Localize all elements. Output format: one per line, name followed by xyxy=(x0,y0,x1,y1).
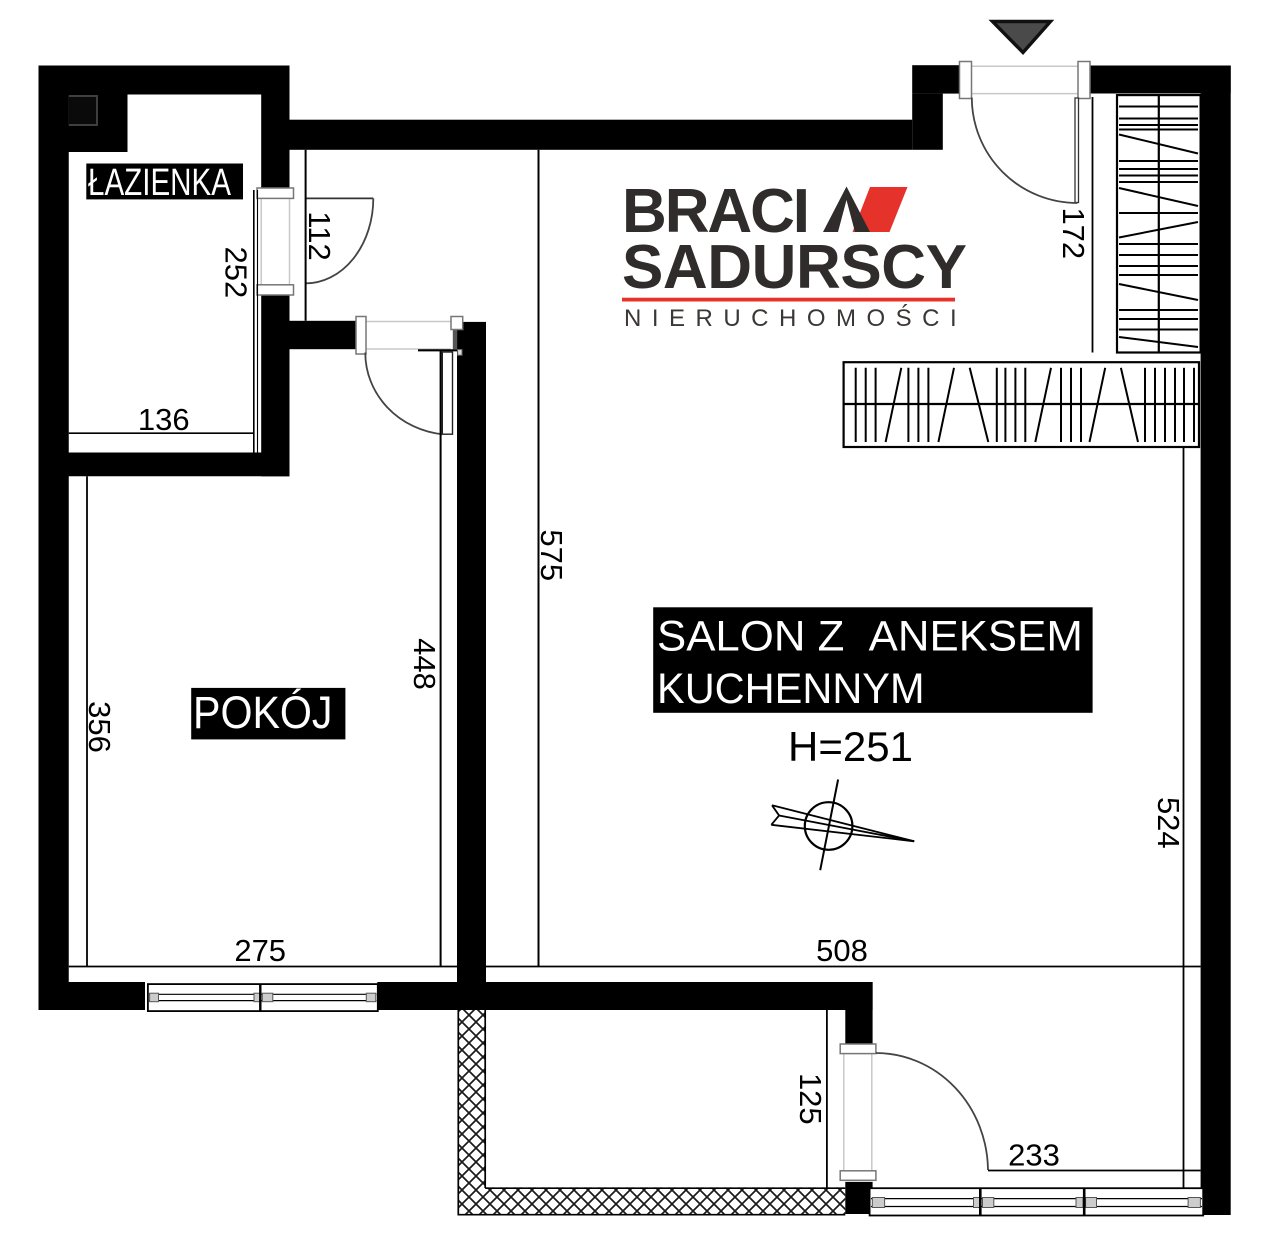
svg-text:575: 575 xyxy=(534,529,569,581)
svg-text:SALON Z ANEKSEM: SALON Z ANEKSEM xyxy=(657,612,1083,660)
svg-text:356: 356 xyxy=(82,701,117,753)
svg-text:SADURSCY: SADURSCY xyxy=(622,233,967,302)
svg-text:448: 448 xyxy=(407,638,442,690)
svg-text:172: 172 xyxy=(1056,207,1091,259)
svg-text:NIERUCHOMOŚCI: NIERUCHOMOŚCI xyxy=(624,304,967,332)
svg-text:233: 233 xyxy=(1008,1138,1060,1173)
svg-text:125: 125 xyxy=(793,1073,828,1125)
svg-text:252: 252 xyxy=(219,247,254,299)
svg-text:275: 275 xyxy=(234,933,286,968)
svg-text:524: 524 xyxy=(1151,797,1186,849)
svg-text:112: 112 xyxy=(302,211,337,260)
svg-text:H=251: H=251 xyxy=(788,723,913,770)
svg-text:POKÓJ: POKÓJ xyxy=(193,687,333,738)
svg-text:136: 136 xyxy=(138,402,190,437)
svg-text:508: 508 xyxy=(816,933,868,968)
svg-text:KUCHENNYM: KUCHENNYM xyxy=(657,665,925,713)
svg-text:ŁAZIENKA: ŁAZIENKA xyxy=(88,162,232,204)
